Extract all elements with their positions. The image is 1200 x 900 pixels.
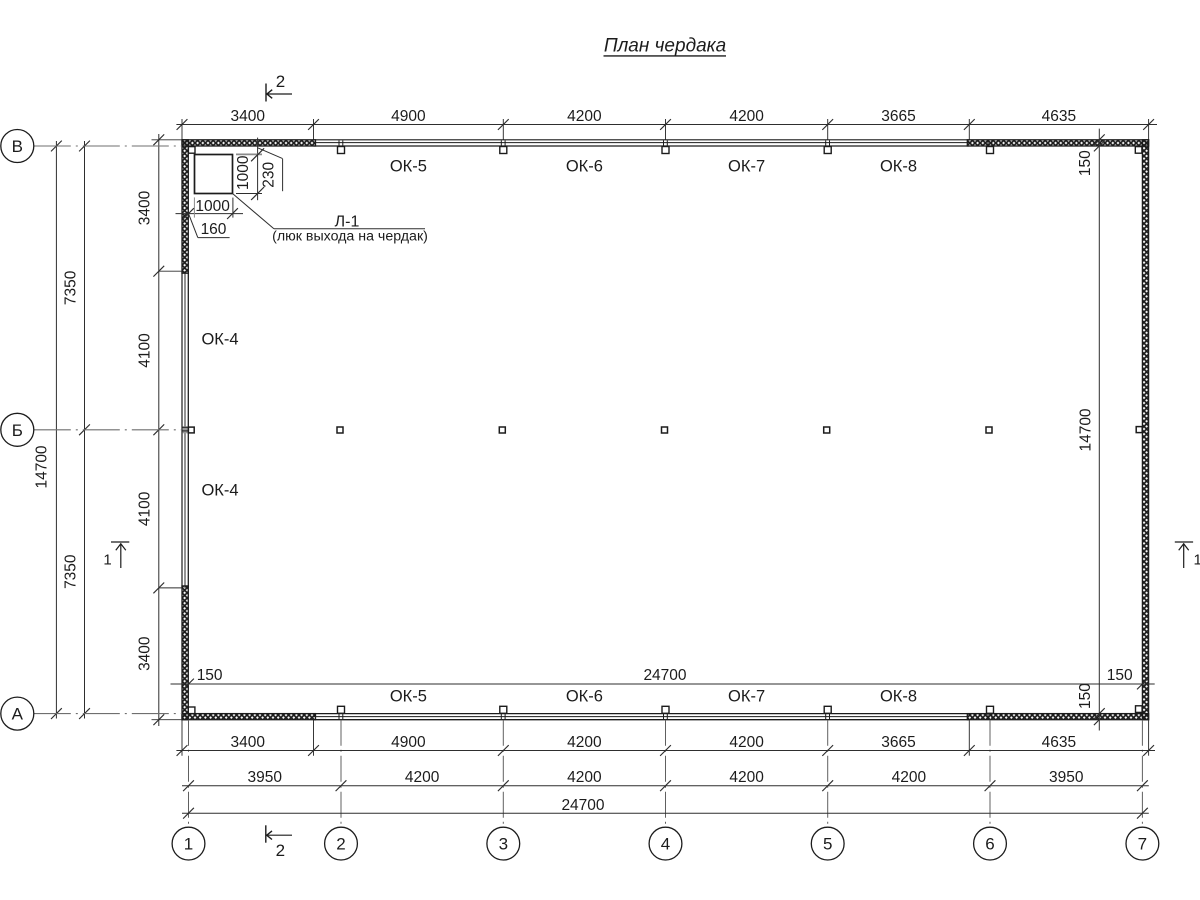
- svg-text:1: 1: [103, 552, 111, 569]
- svg-text:4200: 4200: [567, 108, 602, 125]
- svg-text:2: 2: [276, 841, 285, 860]
- svg-text:4200: 4200: [567, 769, 602, 786]
- svg-text:3665: 3665: [881, 734, 915, 751]
- svg-text:ОК-5: ОК-5: [390, 688, 427, 706]
- svg-text:4: 4: [661, 835, 670, 854]
- svg-text:14700: 14700: [34, 445, 51, 488]
- svg-text:150: 150: [1077, 150, 1094, 176]
- svg-text:7350: 7350: [63, 554, 80, 589]
- svg-text:А: А: [12, 705, 24, 724]
- svg-text:В: В: [12, 137, 23, 156]
- svg-text:ОК-8: ОК-8: [880, 158, 917, 176]
- svg-text:1: 1: [1194, 552, 1200, 569]
- svg-text:150: 150: [1077, 683, 1094, 709]
- svg-text:4900: 4900: [391, 734, 426, 751]
- svg-text:4200: 4200: [729, 734, 764, 751]
- svg-text:2: 2: [276, 72, 285, 91]
- svg-text:4200: 4200: [729, 108, 764, 125]
- svg-text:3400: 3400: [136, 636, 153, 671]
- svg-text:4200: 4200: [729, 769, 764, 786]
- svg-text:План чердака: План чердака: [604, 36, 726, 57]
- svg-text:4200: 4200: [405, 769, 440, 786]
- svg-text:3665: 3665: [881, 108, 915, 125]
- svg-text:ОК-7: ОК-7: [728, 688, 765, 706]
- svg-text:7350: 7350: [63, 270, 80, 305]
- svg-text:150: 150: [1107, 667, 1133, 684]
- svg-text:Б: Б: [12, 421, 23, 440]
- svg-text:ОК-5: ОК-5: [390, 158, 427, 176]
- svg-text:24700: 24700: [561, 797, 604, 814]
- svg-text:4200: 4200: [892, 769, 927, 786]
- svg-text:4635: 4635: [1042, 734, 1076, 751]
- svg-text:24700: 24700: [643, 667, 686, 684]
- svg-text:1000: 1000: [195, 198, 230, 215]
- svg-text:(люк выхода на чердак): (люк выхода на чердак): [272, 229, 428, 245]
- svg-text:4100: 4100: [136, 333, 153, 368]
- svg-text:4100: 4100: [136, 491, 153, 526]
- svg-text:2: 2: [336, 835, 345, 854]
- svg-text:160: 160: [201, 221, 227, 238]
- svg-text:230: 230: [261, 161, 278, 187]
- svg-text:150: 150: [197, 667, 223, 684]
- svg-text:4635: 4635: [1042, 108, 1076, 125]
- svg-text:5: 5: [823, 835, 832, 854]
- svg-text:ОК-7: ОК-7: [728, 158, 765, 176]
- svg-text:1000: 1000: [235, 155, 252, 190]
- svg-text:7: 7: [1138, 835, 1147, 854]
- svg-text:3: 3: [499, 835, 508, 854]
- svg-text:1: 1: [184, 835, 193, 854]
- svg-text:6: 6: [985, 835, 994, 854]
- svg-text:ОК-4: ОК-4: [201, 331, 238, 349]
- svg-text:ОК-6: ОК-6: [566, 158, 603, 176]
- svg-text:14700: 14700: [1077, 408, 1094, 451]
- svg-text:4200: 4200: [567, 734, 602, 751]
- svg-text:3400: 3400: [136, 190, 153, 225]
- svg-text:ОК-4: ОК-4: [201, 482, 238, 500]
- svg-text:3400: 3400: [231, 734, 266, 751]
- svg-text:ОК-8: ОК-8: [880, 688, 917, 706]
- svg-text:3400: 3400: [231, 108, 266, 125]
- svg-text:4900: 4900: [391, 108, 426, 125]
- svg-text:3950: 3950: [248, 769, 283, 786]
- svg-text:3950: 3950: [1049, 769, 1084, 786]
- svg-text:ОК-6: ОК-6: [566, 688, 603, 706]
